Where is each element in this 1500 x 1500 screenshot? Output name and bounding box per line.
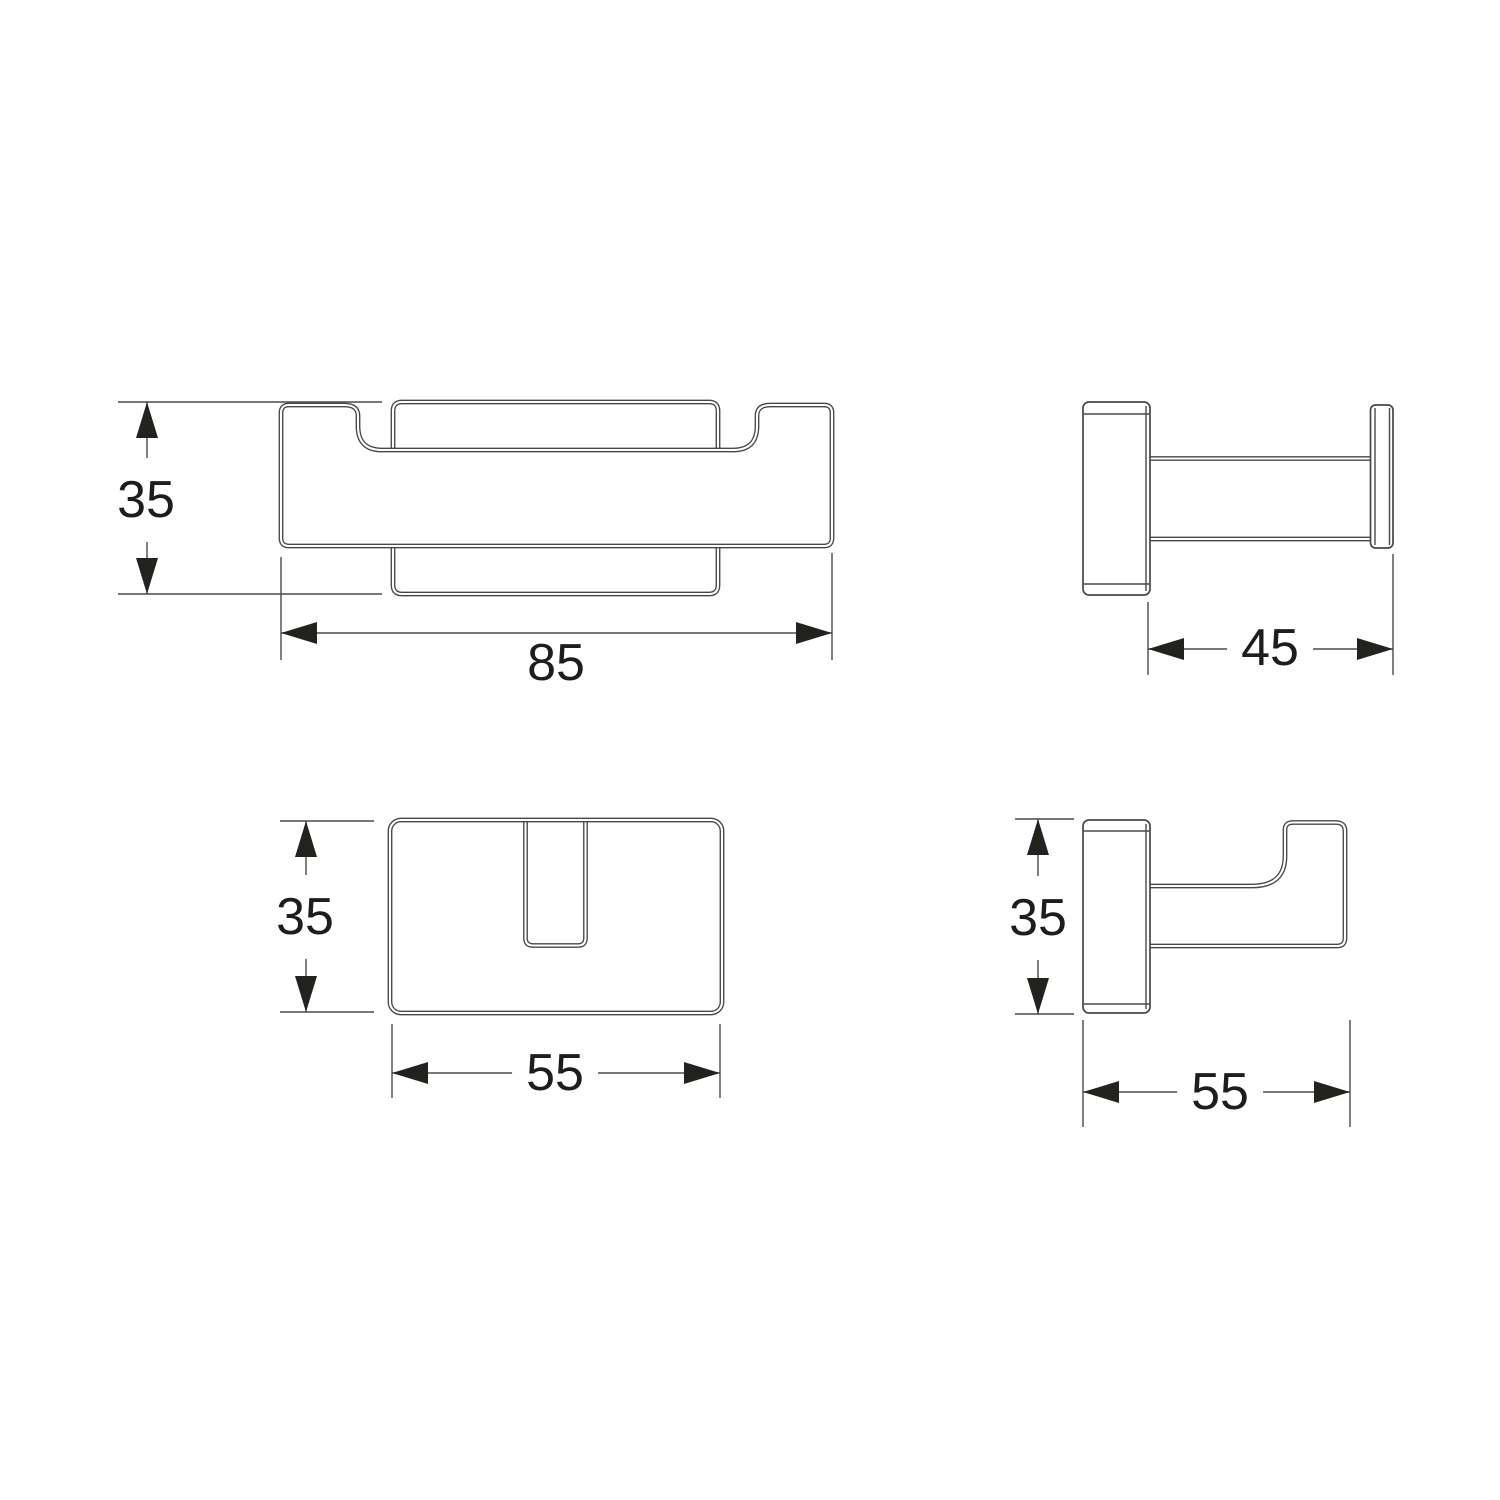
arrowhead-left	[1148, 638, 1184, 660]
profile-height-dimension-label: 35	[1000, 876, 1076, 960]
front-height-dimension-label: 35	[108, 458, 184, 542]
side-mount-plate	[1083, 402, 1150, 595]
arrowhead-left	[392, 1062, 428, 1084]
front-view	[118, 402, 832, 660]
arrowhead-right	[684, 1062, 720, 1084]
profile-width-dimension-label: 55	[1177, 1060, 1263, 1124]
arrowhead-left	[281, 622, 317, 644]
arrowhead-up	[295, 821, 317, 857]
arrowhead-right	[1314, 1081, 1350, 1103]
front-width-dimension-label: 85	[521, 635, 591, 691]
front-backplate-lower	[393, 544, 718, 594]
arrowhead-up	[1027, 819, 1049, 855]
profile-mount-plate	[1083, 820, 1150, 1013]
arrowhead-up	[136, 402, 158, 438]
front-backplate-upper	[393, 402, 718, 452]
side-depth-dimension-label: 45	[1227, 616, 1313, 680]
arrowhead-right	[1357, 638, 1393, 660]
technical-drawing-canvas: 35 85 45 35 55 35 55	[0, 0, 1500, 1500]
profile-hook-outline	[1150, 823, 1345, 947]
arrowhead-down	[295, 976, 317, 1012]
top-arm-slot	[526, 821, 586, 946]
top-view	[280, 820, 722, 1098]
top-height-dimension-label: 35	[267, 875, 343, 959]
top-body-outline	[390, 820, 722, 1013]
arrowhead-down	[136, 558, 158, 594]
drawing-linework	[0, 0, 1500, 1500]
arrowhead-left	[1083, 1081, 1119, 1103]
top-width-dimension-label: 55	[512, 1041, 598, 1105]
arrowhead-down	[1027, 978, 1049, 1014]
front-hook-body-outline	[281, 405, 832, 546]
arrowhead-right	[796, 622, 832, 644]
